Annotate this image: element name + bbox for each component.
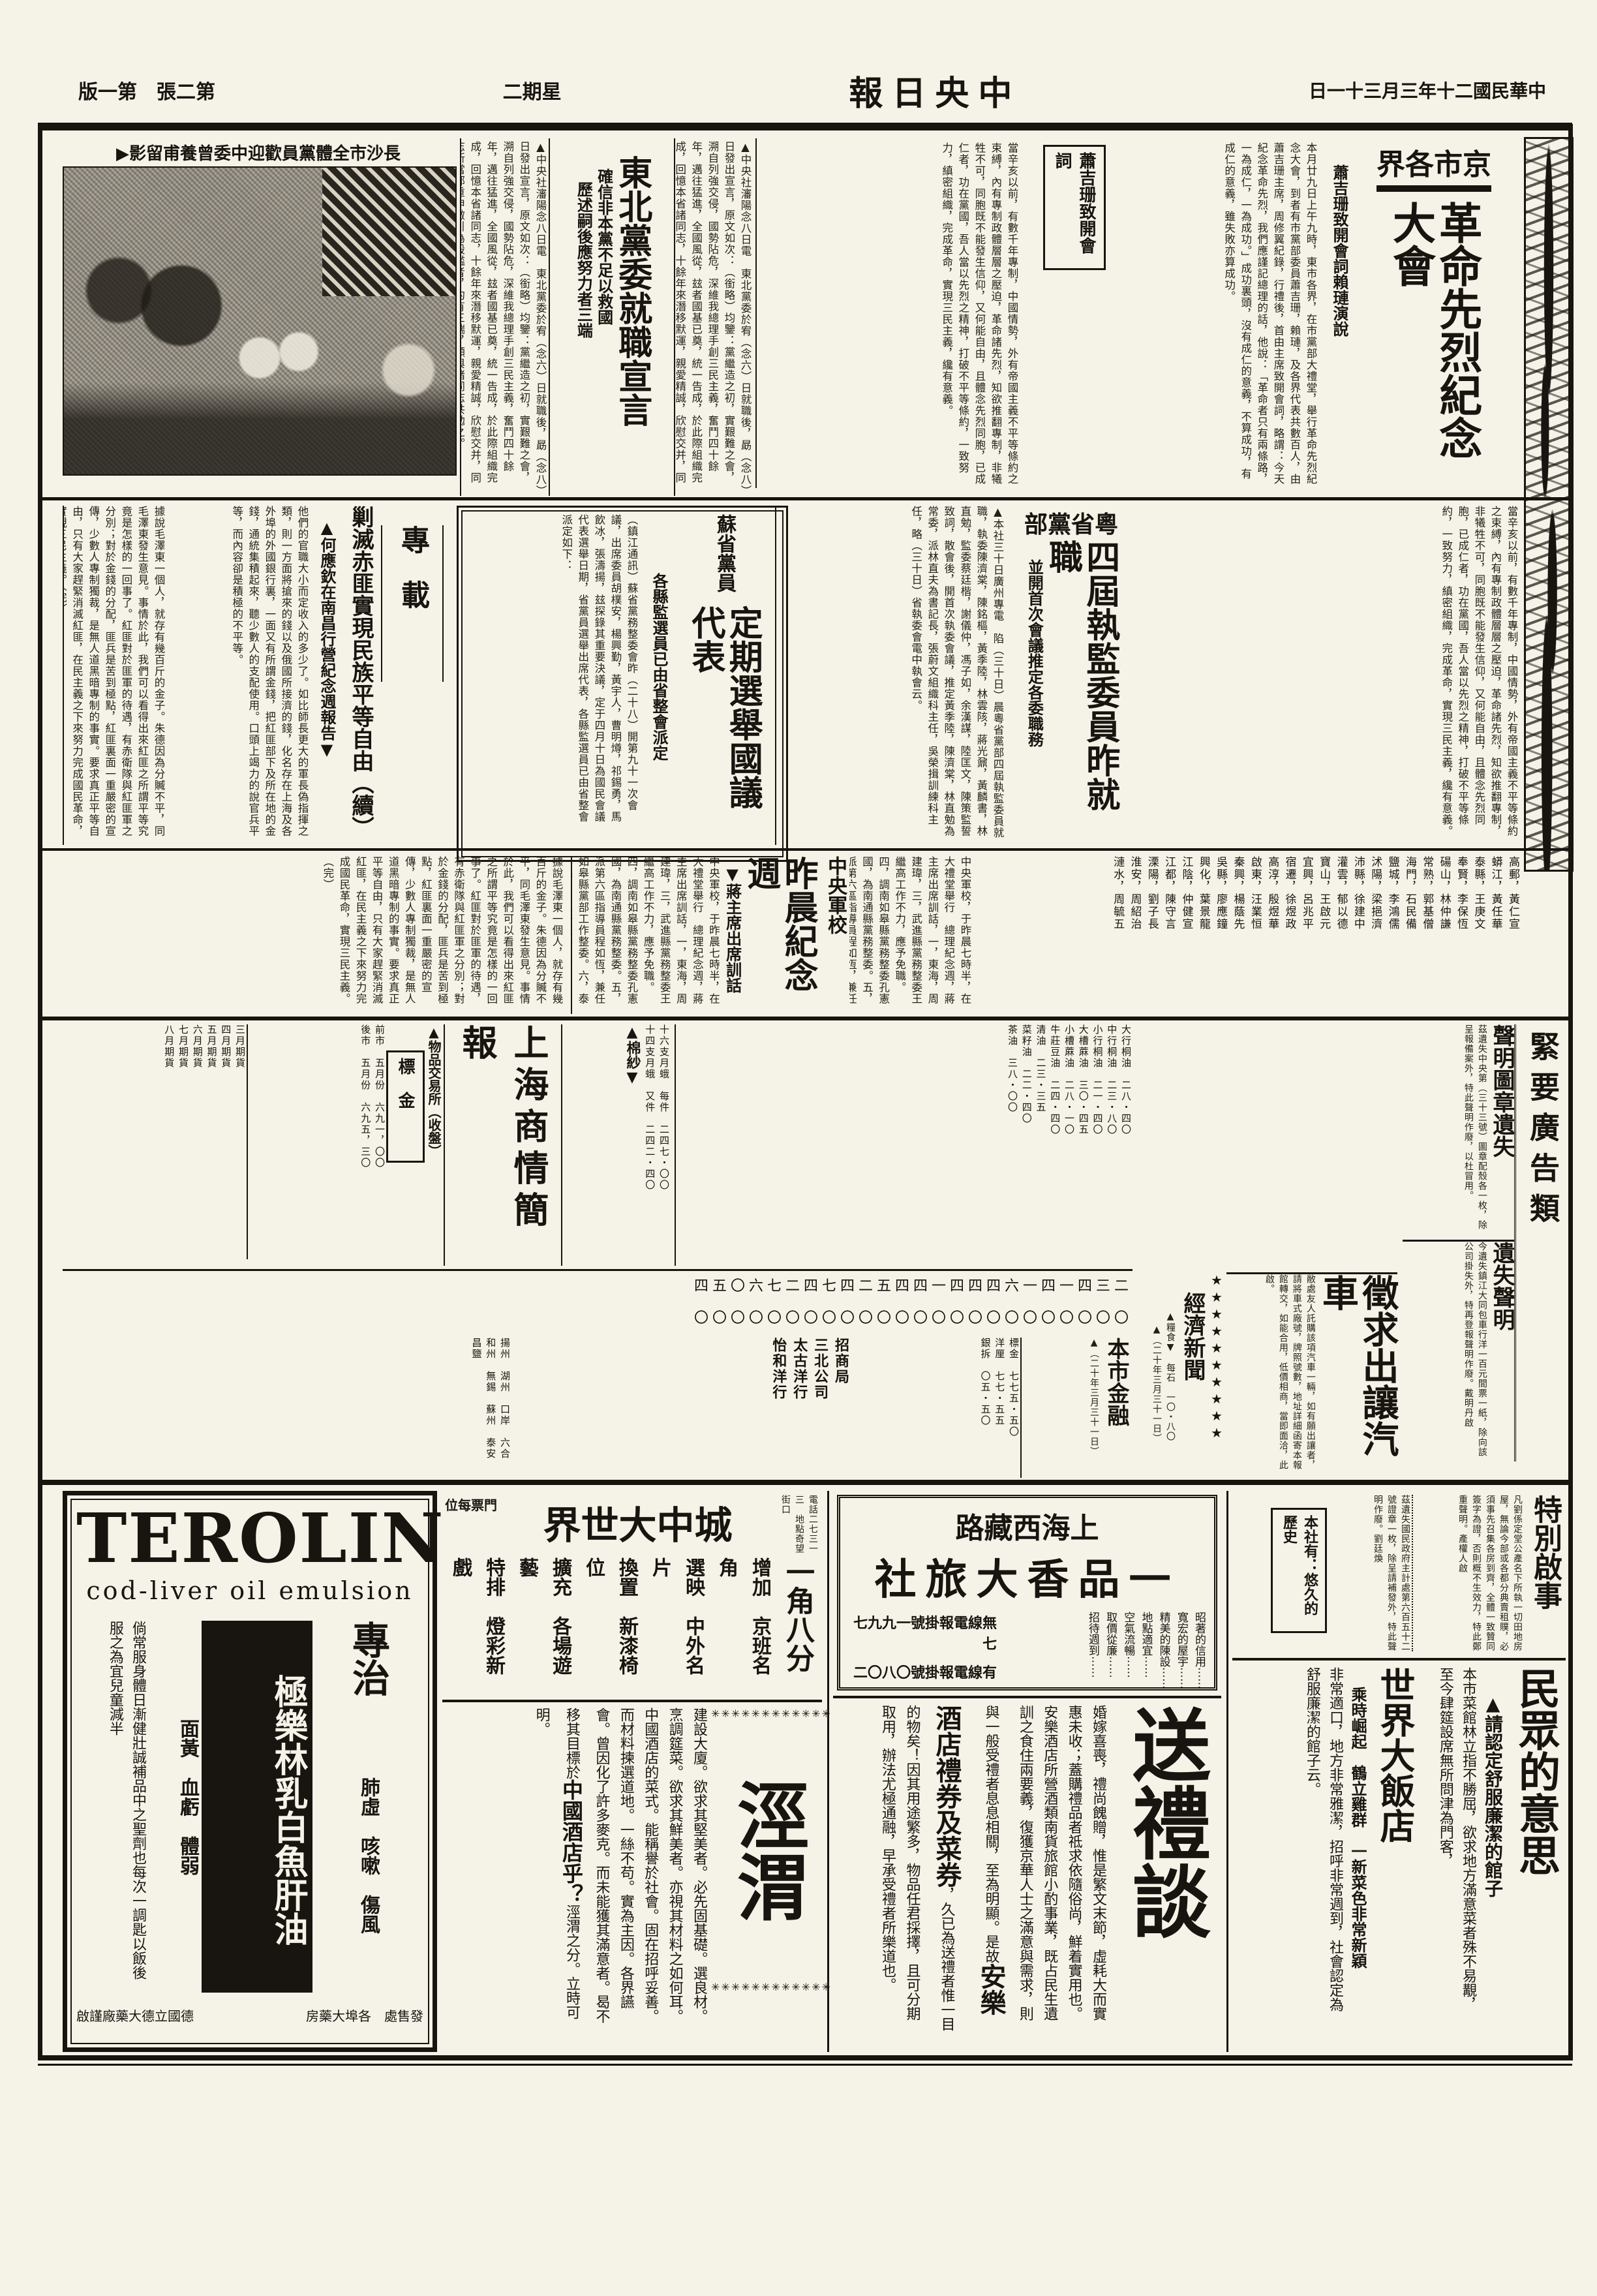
minzhong-subhead: ▲請認定舒服廉潔的館子 — [1480, 1667, 1506, 2045]
article-guangdong-committee: 粵省黨部 四屆執監委員昨就職 並開首次會議推定各委職務 ▲本社三十日廣州專電 陷… — [775, 506, 1136, 845]
commodity-row: 茶油 三八・〇〇 — [1005, 1024, 1019, 1259]
commodity-row: 牛莊豆油 二四・四〇 — [1048, 1024, 1062, 1259]
terolin-ad: TEROLIN cod-liver oil emulsion 專治 肺虛 咳嗽 … — [63, 1491, 437, 2052]
month-row: 四月期貨 — [219, 1024, 233, 1259]
page-frame-left — [38, 124, 42, 2060]
memorial-kicker: 京市各界 — [1376, 141, 1491, 192]
name-pair: 吳縣，廖應鐘 — [1212, 856, 1229, 1014]
gold-row: 前市 五月份 六九一，〇〇 — [372, 1024, 386, 1253]
ad-zone-notices: 特別啟事 凡劉係定堂公產名下所執一切田地房屋，無論今部或各都分典賣租贌，必須事先… — [1226, 1491, 1570, 2052]
minzhong-title: 民眾的意思 — [1506, 1667, 1566, 2019]
market-report: 大行桐油 二八・四〇中行桐油 二三・八〇小行桐油 二一・四〇大槽蔴油 三〇・四五… — [63, 1024, 1133, 1266]
yipinxiang-wire: 有線電報掛號〇八〇二 — [847, 1661, 997, 1682]
world-name: 城中大世界 — [543, 1495, 732, 1550]
finance-row: 洋厘 七七・五五 — [992, 1338, 1007, 1471]
bottom-rule-1 — [38, 2055, 1572, 2060]
market-title: 上海商情簡報 — [445, 1024, 561, 1259]
band-rule-4 — [38, 1480, 1572, 1485]
yipinxiang-location: 上海西藏路 — [847, 1505, 1208, 1546]
edition-label: 第二張 第一版 — [78, 76, 215, 104]
band-rule-1 — [38, 497, 1572, 500]
minzhong-hotel-sub: 乘時崛起 鶴立雞群 一新菜色非常新穎 — [1346, 1667, 1369, 2039]
special-feature-subhead: ▲何應欽在南昌行營紀念週報告▼ — [311, 506, 337, 845]
terolin-maker: 德國立德大藥廠謹啟 — [76, 2006, 194, 2025]
memorial-headline: 革命先烈紀念大會 — [1388, 201, 1481, 488]
commodity-row: 清油 二三・三五 — [1033, 1024, 1048, 1259]
commodity-row: 菜籽油 二二・四〇 — [1019, 1024, 1033, 1259]
minzhong-article: 民眾的意思 ▲請認定舒服廉潔的館子 本市菜館林立指不勝屈，欲求地方滿意菜者殊不易… — [1232, 1661, 1566, 2032]
yarn-table: 十六支月蛾 每件 二四七・〇〇十四支月蛾 又件 二四二・四〇 — [643, 1024, 671, 1259]
special-feature-headline: 剿滅赤匪實現民族平等自由（續） — [337, 506, 373, 832]
month-row: 三月期貨 — [232, 1024, 247, 1259]
yarn-row: 十六支月蛾 每件 二四七・〇〇 — [656, 1024, 671, 1259]
seal-lost-body: 茲遺失中央第（三十三號）圖章配殼各一枚，除呈報備案外，特此聲明作廢，以杜冒用。 — [1403, 1024, 1489, 1233]
commodity-row: 中行桐油 二三・八〇 — [1104, 1024, 1119, 1259]
minzhong-hotel-body: 非常適口，地方非常雅潔，招呼非常週到，社會認定為舒服廉潔的館子云。 — [1232, 1667, 1346, 2019]
supervisors-name-table: 高郵，黃仁宣蟒江，黃任華泰縣，王庚文奉賢，李保恆碭山，林仲謙常熟，郭基僧海門，石… — [1109, 856, 1521, 1014]
name-pair: 沭陽，梁挹濟 — [1367, 856, 1384, 1014]
special-feature: 專載 剿滅赤匪實現民族平等自由（續） ▲何應欽在南昌行營紀念週報告▼ 他們的官職… — [168, 506, 451, 845]
seal-lost-headline: 聲明圖章遺失 — [1489, 1024, 1514, 1233]
academy-subhead: ▼蔣主席出席訓話 — [722, 856, 742, 1022]
yarn-label: ▲棉紗▼ — [622, 1024, 643, 1259]
world-ticket-note: 門票每位 — [445, 1495, 497, 1514]
photo-block: 長沙市全體黨員歡迎中委曾養甫留影▶ — [63, 140, 454, 496]
month-row: 八月期貨 — [162, 1024, 176, 1259]
yipinxiang-features: 昭著的信用⋯⋯寬宏的屋宇⋯⋯精美的陳設⋯⋯地點適宜⋯⋯空氣流暢⋯⋯取價從廉⋯⋯招… — [997, 1612, 1208, 1690]
memorial-body2: 當辛亥以前，有數千年專制，中國情勢，外有帝國主義不平等條約之束縛，內有專制政體層… — [755, 138, 1026, 488]
northeast-body: ▲中央社瀋陽念八日電 東北黨委於宥（念六）日就職後，勗（念八）日發出宣言，原文如… — [461, 138, 549, 493]
world-feature: 換置 新漆椅位 — [577, 1557, 643, 1685]
company-name: 三北公司 — [809, 1338, 830, 1471]
yipinxiang-radio: 無線電報掛號一九九七七 — [847, 1612, 997, 1653]
weekday-label: 星期二 — [503, 76, 562, 104]
ticket-lost-headline: 遺失聲明 — [1489, 1242, 1514, 1463]
songli-ad: 送禮談 婚嫁喜喪，禮尚餽贈，惟是繁文末節，虛耗大而實惠未收；蓋購禮品者祗求依隨俗… — [833, 1696, 1221, 2044]
finance-table: 標金 七七五・五〇洋厘 七七・五五銀拆 〇五・五〇 — [851, 1338, 1020, 1471]
yipinxiang-feature: 地點適宜⋯⋯ — [1136, 1612, 1154, 1690]
economic-news-header: 經濟新聞 — [1177, 1272, 1209, 1488]
world-contact: 電話二七三一三 地點奇望街口 — [778, 1495, 819, 1554]
name-pair: 寶山，王啟元 — [1315, 856, 1332, 1014]
guangdong-body: ▲本社三十日廣州專電 陷（三十日）晨粵省黨部四屆執監委員就職，執委陳濟棠，陳銘樞… — [776, 506, 1006, 842]
world-features: 增加 京班名角選映 中外名片換置 新漆椅位擴充 各場遊藝特排 燈彩新戲新編 白話… — [446, 1557, 776, 1685]
name-pair: 高郵，黃仁宣 — [1504, 856, 1521, 1014]
jiangsu-kicker: 蘇省黨員 — [710, 514, 738, 605]
name-pair: 沛縣，徐建中 — [1350, 856, 1367, 1014]
yipinxiang-feature: 招待週到⋯⋯ — [1084, 1612, 1101, 1690]
terolin-brand: TEROLIN — [76, 1505, 423, 1572]
article-northeast-committee: ▲中央社瀋陽念八日電 東北黨委於宥（念六）日就職後，勗（念八）日發出宣言，原文如… — [460, 138, 753, 496]
terolin-usage: 倘常服身體日漸健壯誠補品中之聖劑也每次一調匙以飯後服之為宜兒童減半 — [76, 1621, 149, 1986]
songli-title: 送禮談 — [1110, 1705, 1221, 2031]
commodity-row: 大行桐油 二八・四〇 — [1118, 1024, 1133, 1259]
name-pair: 海門，石民備 — [1401, 856, 1418, 1014]
northeast-subhead2: 歷述嗣後應努力者三端 — [573, 138, 593, 488]
article-jiangsu-election: 蘇省黨員 定期選舉國議代表 各縣監選員已由省整會派定 （鎮江通訊）蘇省黨務整委會… — [457, 506, 788, 862]
name-pair: 溧陽，劉子長 — [1143, 856, 1160, 1014]
northeast-headline: 東北黨委就職宣言 — [614, 138, 651, 462]
economic-news-block: ★★★★★★★★★★ 經濟新聞 ▲糧食▼ 每石 一〇・八〇 ▲（二十年三月三十一… — [1136, 1272, 1224, 1478]
jiangsu-body: （鎮江通訊）蘇省黨務整委會昨（二十八）開第九十一次會議，出席委員胡樸安，楊興勤，… — [465, 514, 640, 827]
finance-date: ▲（二十年三月三十一日） — [1087, 1338, 1101, 1468]
academy-news-items: 中央軍校，于昨晨七時半，在大禮堂舉行 總理紀念週，蔣主席出席訓話，一，東海，周建… — [849, 856, 973, 1013]
classifieds-column: 緊要廣告類 聲明圖章遺失 茲遺失中央第（三十三號）圖章配殼各一枚，除呈報備案外，… — [1403, 1024, 1570, 1478]
name-pair: 啟東，汪業恒 — [1247, 856, 1264, 1014]
terolin-ailments-1: 肺虛 咳嗽 傷風 — [354, 1777, 382, 1973]
finance-row: 銀拆 〇五・五〇 — [978, 1338, 992, 1471]
gold-row: 後市 五月份 六九五，三〇 — [358, 1024, 373, 1253]
special-notice-header: 特別啟事 — [1524, 1495, 1566, 1651]
company-name: 太古洋行 — [788, 1338, 809, 1471]
name-pair: 興化，葉景龍 — [1194, 856, 1211, 1014]
finance-row: 標金 七七五・五〇 — [1006, 1338, 1020, 1471]
name-pair: 宿遷，徐煜政 — [1281, 856, 1298, 1014]
memorial-body: 本月廿九日上午九時，東市各界，在市黨部大禮堂，舉行革命先烈紀念大會，到者有市黨部… — [1123, 138, 1319, 488]
world-feature: 選映 中外名片 — [643, 1557, 710, 1685]
special-feature-body: 他們的官職大小而定收入的多少了。如比師長更大的軍長偽指揮之類，則一方面將搶來的錢… — [168, 506, 311, 838]
special-notice-body2: 茲遺失國民政府主計處第六百五十二號證章一枚，除呈請補發外，特此聲明作廢。劉廷煥 — [1327, 1495, 1413, 1651]
commodity-row: 小槽蔴油 二八・一〇 — [1061, 1024, 1076, 1259]
academy-headline: 昨晨紀念週 — [742, 856, 821, 1013]
world-feature: 特排 燈彩新戲 — [446, 1557, 510, 1685]
jiangsu-subhead: 各縣監選員已由省整會派定 — [640, 514, 669, 886]
shipping-companies: 招商局三北公司太古洋行怡和洋行 — [511, 1338, 851, 1471]
name-pair: 淮安，周紹治 — [1126, 856, 1143, 1014]
shipping-finance-band: 本市金融 ▲（二十年三月三十一日） 標金 七七五・五〇洋厘 七七・五五銀拆 〇五… — [63, 1338, 1133, 1478]
article-memorial-rally: 京市各界 革命先烈紀念大會 蕭吉珊致開會詞賴璉演說 本月廿九日上午九時，東市各界… — [755, 138, 1519, 496]
shipping-routes: 揚州 湖州 口岸 六合 和州 無錫 蘇州 泰安 昌鹽 — [63, 1338, 511, 1471]
songli-body: 婚嫁喜喪，禮尚餽贈，惟是繁文末節，虛耗大而實惠未收；蓋購禮品者祗求依隨俗尚，鮮着… — [833, 1705, 1110, 2031]
yipinxiang-name: 一品香大旅社 — [847, 1546, 1208, 1606]
car-wanted-headline: 徵求出讓汽車 — [1317, 1274, 1397, 1473]
northeast-subhead1: 確信非本黨不足以救國 — [593, 138, 613, 475]
finance-header: 本市金融 — [1101, 1338, 1133, 1468]
terolin-claim: 專治 — [341, 1621, 395, 1777]
group-photo — [63, 166, 457, 476]
decorative-calligraphy-art — [1524, 137, 1574, 872]
jingwei-brand: 中國酒店乎？ — [559, 1779, 584, 1905]
left-column-continuation: 據說毛澤東一個人，就存有幾百斤的金子。朱德因為分贓不平，同毛澤東發生意見。事情於… — [63, 506, 167, 845]
ad-zone-yipinxiang: 上海西藏路 一品香大旅社 昭著的信用⋯⋯寬宏的屋宇⋯⋯精美的陳設⋯⋯地點適宜⋯⋯… — [827, 1491, 1221, 2052]
northeast-body-right: ▲中央社瀋陽念八日電 東北黨委於宥（念六）日就職後，勗（念八）日發出宣言，原文如… — [675, 138, 753, 493]
yipinxiang-feature: 空氣流暢⋯⋯ — [1119, 1612, 1136, 1690]
academy-body: 中央軍校，于昨晨七時半，在大禮堂舉行 總理紀念週，蔣主席出席訓話，一，東海，周建… — [572, 856, 722, 1013]
world-feature: 擴充 各場遊藝 — [510, 1557, 577, 1685]
terolin-seller: 發售處 各埠大藥房 — [306, 2006, 423, 2025]
world-feature: 增加 京班名角 — [710, 1557, 776, 1685]
futures-months-table: 三月期貨四月期貨五月期貨六月期貨七月期貨八月期貨 — [63, 1024, 248, 1259]
name-pair: 江都，陳守言 — [1161, 856, 1178, 1014]
name-pair: 高淳，殷煜華 — [1264, 856, 1281, 1014]
band-rule-3 — [38, 1017, 1572, 1020]
name-pair: 灌雲，郁以德 — [1332, 856, 1349, 1014]
gold-table: 前市 五月份 六九一，〇〇後市 五月份 六九五，三〇 — [248, 1024, 386, 1253]
masthead: 第二張 第一版 星期二 中央日報 中華民國二十年三月三十一日 — [39, 63, 1572, 117]
commodity-price-table: 大行桐油 二八・四〇中行桐油 二三・八〇小行桐油 二一・四〇大槽蔴油 三〇・四五… — [676, 1024, 1133, 1259]
special-feature-label: 專載 — [381, 525, 444, 682]
car-wanted-body: 敝處友人託購該項汽車一輛，如有願出讓者，請將車式廠號，牌照號數，地址詳細函寄本報… — [1226, 1274, 1317, 1473]
memorial-subhead: 蕭吉珊致開會詞賴璉演說 — [1319, 138, 1349, 491]
special-feature-body2: 據說毛澤東一個人，就存有幾百斤的金子。朱德因為分贓不平，同毛澤東發生意見。事情於… — [63, 856, 565, 1014]
exchange-label: ▲物品交易所（收盤） — [425, 1024, 444, 1253]
terolin-subtitle: cod-liver oil emulsion — [76, 1576, 423, 1605]
jingwei-stars-bottom: ✳✳✳✳✳✳✳✳✳✳✳✳ — [711, 1981, 822, 1993]
month-row: 七月期貨 — [175, 1024, 190, 1259]
speech-box-label: 蕭吉珊致開會詞 — [1043, 145, 1106, 270]
masthead-rule — [38, 123, 1572, 130]
car-wanted-ad: 徵求出讓汽車 敝處友人託購該項汽車一輛，如有願出讓者，請將車式廠號，牌照號數，地… — [1226, 1272, 1397, 1480]
band-rule-2 — [38, 848, 1572, 851]
terolin-product-name: 極樂林乳白魚肝油 — [202, 1621, 312, 1993]
name-pair: 碭山，林仲謙 — [1435, 856, 1452, 1014]
special-notice-box: 本社有：悠久的歷史 — [1271, 1508, 1327, 1633]
jiangsu-headline: 定期選舉國議代表 — [687, 605, 761, 827]
guangdong-subhead: 並開首次會議推定各委職務 — [1024, 540, 1044, 846]
jingwei-big: 涇渭 — [714, 1720, 819, 1981]
ticket-lost-body: 今遺失鎮江大同包車行洋一百元間票一紙，除向該公司掛失外，特再登報聲明作廢。戴明丹… — [1403, 1242, 1489, 1463]
classifieds-header: 緊要廣告類 — [1514, 1024, 1570, 1462]
name-pair: 泰縣，王庚文 — [1470, 856, 1487, 1014]
minzhong-body: 本市菜館林立指不勝屈，欲求地方滿意菜者殊不易覯，至今肆筵設席無所問津為門客， — [1421, 1667, 1480, 2019]
company-name: 招商局 — [830, 1338, 851, 1471]
special-notice-body1: 凡劉係定堂公產名下所執一切田地房屋，無論今部或各都分典賣租贌，必須事先召集各房到… — [1413, 1495, 1524, 1651]
jingwei-ad: ✳✳✳✳✳✳✳✳✳✳✳✳ 涇渭 ✳✳✳✳✳✳✳✳✳✳✳✳ 建設大廈。欲求其堅美者… — [442, 1702, 822, 2047]
newspaper-page: 第二張 第一版 星期二 中央日報 中華民國二十年三月三十一日 京市各界 革命先烈… — [0, 0, 1597, 2296]
jingwei-stars-top: ✳✳✳✳✳✳✳✳✳✳✳✳ — [711, 1707, 822, 1720]
name-pair: 蟒江，黃任華 — [1487, 856, 1504, 1014]
date-label: 中華民國二十年三月三十一日 — [1309, 77, 1546, 103]
yarn-row: 十四支月蛾 又件 二四二・四〇 — [643, 1024, 657, 1259]
guangdong-headline: 四屆執監委員昨就職 — [1044, 540, 1118, 827]
yipinxiang-feature: 昭著的信用⋯⋯ — [1190, 1612, 1208, 1690]
name-pair: 鹽城，李鴻儒 — [1384, 856, 1401, 1014]
paper-title: 中央日報 — [849, 66, 1021, 115]
price-zeros-row: 〇〇〇〇〇〇〇〇〇〇〇〇〇〇〇〇〇〇〇〇〇〇〇〇 — [63, 1308, 1133, 1334]
yipinxiang-feature: 寬宏的屋宇⋯⋯ — [1172, 1612, 1190, 1690]
name-pair: 漣水，周毓五 — [1109, 856, 1126, 1014]
world-price: 一角八分 — [776, 1557, 818, 1685]
month-row: 五月期貨 — [204, 1024, 219, 1259]
yipinxiang-feature: 取價從廉⋯⋯ — [1101, 1612, 1119, 1690]
month-row: 六月期貨 — [190, 1024, 204, 1259]
guangdong-kicker: 粵省黨部 — [1024, 506, 1118, 540]
name-pair: 奉賢，李保恆 — [1453, 856, 1470, 1014]
speech-continuation: 當辛亥以前，有數千年專制，中國情勢，外有帝國主義不平等條約之束縛，內有專制政體層… — [1138, 506, 1520, 845]
name-pair: 宜興，呂兆平 — [1298, 856, 1315, 1014]
grain-price: ▲糧食▼ 每石 一〇・八〇 — [1163, 1272, 1177, 1507]
commodity-row: 大槽蔴油 三〇・四五 — [1076, 1024, 1090, 1259]
gold-label: 標 金 — [386, 1050, 425, 1163]
academy-kicker: 中央軍校 — [821, 856, 849, 1013]
bottom-rule-2 — [38, 2064, 1572, 2066]
star-border: ★★★★★★★★★★ — [1209, 1272, 1224, 1468]
commodity-row: 小行桐油 二一・四〇 — [1090, 1024, 1104, 1259]
article-military-academy: 中央軍校，于昨晨七時半，在大禮堂舉行 總理紀念週，蔣主席出席訓話，一，東海，周建… — [571, 856, 973, 1014]
jingwei-body: 建設大廈。欲求其堅美者。必先固基礎。選良材。烹調筵菜。欲求其鮮美者。亦視其材料之… — [442, 1707, 711, 2034]
ad-zone-world: 電話二七三一三 地點奇望街口 城中大世界 門票每位 一角八分 增加 京班名角選映… — [442, 1491, 822, 2052]
name-pair: 常熟，郭基僧 — [1418, 856, 1435, 1014]
name-pair: 江陰，仲健宣 — [1178, 856, 1194, 1014]
minzhong-hotel: 世界大飯店 — [1369, 1667, 1421, 2019]
photo-caption: 長沙市全體黨員歡迎中委曾養甫留影▶ — [63, 140, 454, 166]
company-name: 怡和洋行 — [767, 1338, 788, 1471]
name-pair: 秦興，楊蔭先 — [1229, 856, 1246, 1014]
yipinxiang-feature: 精美的陳設⋯⋯ — [1154, 1612, 1172, 1690]
